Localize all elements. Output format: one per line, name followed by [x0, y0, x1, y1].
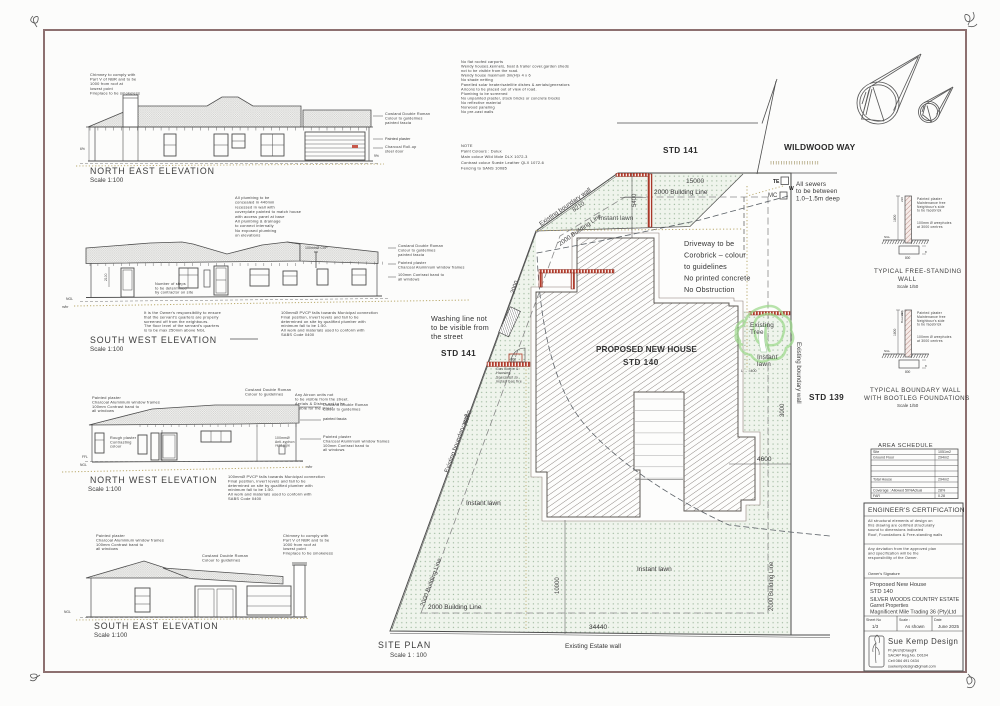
svg-text:1800: 1800 — [893, 214, 897, 222]
svg-text:294m2: 294m2 — [938, 478, 949, 482]
svg-text:Boundary: Boundary — [900, 310, 904, 323]
svg-text:Painted plaster: Painted plaster — [398, 261, 427, 265]
svg-text:SOUTH EAST ELEVATION: SOUTH EAST ELEVATION — [94, 621, 219, 631]
svg-text:Scale 1:100: Scale 1:100 — [90, 177, 124, 184]
svg-text:34440: 34440 — [589, 624, 607, 631]
svg-text:Tree: Tree — [750, 329, 764, 336]
svg-text:to be visible from: to be visible from — [431, 323, 489, 332]
svg-text:is to be max 250mm above NGL: is to be max 250mm above NGL — [144, 328, 206, 333]
svg-text:800: 800 — [905, 370, 911, 374]
svg-text:Fireplace to be smokeless: Fireplace to be smokeless — [283, 551, 333, 556]
svg-text:No pre-cast walls: No pre-cast walls — [461, 110, 494, 114]
svg-text:not to be visible from the roa: not to be visible from the road. — [461, 69, 518, 73]
svg-text:STD 140: STD 140 — [623, 358, 659, 367]
svg-text:on elevations: on elevations — [235, 233, 261, 238]
svg-text:4600: 4600 — [757, 456, 772, 463]
svg-text:Colour to guidelines: Colour to guidelines — [202, 557, 240, 562]
svg-text:by contractor on site: by contractor on site — [155, 291, 193, 295]
svg-text:NGL: NGL — [884, 235, 891, 239]
svg-text:800: 800 — [905, 256, 911, 260]
svg-text:MC: MC — [768, 193, 778, 199]
svg-text:June 2025: June 2025 — [938, 624, 960, 629]
svg-text:Scale 1:100: Scale 1:100 — [94, 632, 128, 639]
svg-text:NGL: NGL — [64, 610, 71, 614]
svg-text:painted fascia: painted fascia — [323, 417, 347, 421]
svg-text:Aircons to be placed out of vi: Aircons to be placed out of view of road… — [461, 87, 537, 91]
svg-text:As shown: As shown — [905, 624, 925, 629]
svg-text:1/3: 1/3 — [872, 624, 879, 629]
svg-text:sound to dimensions indicated: sound to dimensions indicated — [868, 528, 923, 532]
svg-text:1051m2: 1051m2 — [938, 450, 951, 454]
svg-text:Colour to guidelines: Colour to guidelines — [323, 407, 361, 411]
svg-text:this drawing are certified str: this drawing are certified structurally — [868, 524, 935, 528]
svg-text:STD 141: STD 141 — [441, 349, 476, 358]
svg-text:Scale 1:100: Scale 1:100 — [88, 486, 122, 493]
svg-text:Instant: Instant — [757, 354, 778, 361]
svg-text:responsibility of the Owner.: responsibility of the Owner. — [868, 556, 918, 560]
svg-text:Site: Site — [873, 450, 879, 454]
svg-text:to be facebrick: to be facebrick — [917, 323, 942, 327]
svg-text:Colour to guidelines: Colour to guidelines — [398, 248, 436, 252]
svg-text:NOTE: NOTE — [461, 143, 473, 148]
svg-text:Cowland Double Roman: Cowland Double Roman — [385, 112, 430, 116]
svg-text:100mm Contrast band to: 100mm Contrast band to — [323, 444, 369, 448]
svg-text:Main colour Wild Mole DLX 1: Main colour Wild Mole DLX 1072-3 — [461, 154, 528, 159]
svg-text:TE: TE — [773, 179, 780, 185]
svg-text:Scale 1/50: Scale 1/50 — [897, 403, 919, 408]
svg-text:FAR: FAR — [873, 494, 880, 498]
svg-text:Owner's Signature: Owner's Signature — [868, 571, 900, 576]
svg-text:Wendy house maximum 3m(H)x 4 x: Wendy house maximum 3m(H)x 4 x 6 — [461, 74, 531, 78]
svg-text:Instant lawn: Instant lawn — [637, 566, 672, 573]
svg-text:WALL: WALL — [898, 276, 917, 283]
svg-text:Pr.(Arch)Draught: Pr.(Arch)Draught — [888, 649, 917, 653]
svg-text:Proposed New House: Proposed New House — [870, 582, 926, 588]
svg-text:Garret Properties: Garret Properties — [870, 603, 909, 609]
svg-text:Paint Colours : Dulux: Paint Colours : Dulux — [461, 149, 502, 154]
svg-text:No shade netting: No shade netting — [461, 78, 493, 82]
svg-text:Existing boundary wall: Existing boundary wall — [795, 342, 802, 404]
svg-text:Cowland Double Roman: Cowland Double Roman — [398, 244, 443, 248]
svg-text:all windows: all windows — [92, 408, 114, 413]
svg-text:instant lawn: instant lawn — [599, 215, 634, 222]
svg-text:to be between: to be between — [796, 188, 838, 195]
svg-text:100mm Contrast band to: 100mm Contrast band to — [398, 273, 444, 277]
svg-text:Existing: Existing — [750, 322, 774, 329]
svg-text:3000: 3000 — [780, 403, 786, 417]
svg-text:Norwood paneling: Norwood paneling — [461, 106, 495, 110]
svg-text:Scale 1/50: Scale 1/50 — [897, 284, 919, 289]
svg-text:NORTH EAST ELEVATION: NORTH EAST ELEVATION — [90, 166, 215, 176]
svg-text:NGL: NGL — [80, 463, 87, 467]
svg-text:1800: 1800 — [893, 328, 897, 336]
svg-text:STD 139: STD 139 — [809, 393, 844, 402]
svg-text:9%: 9% — [374, 154, 379, 158]
svg-text:Washing line not: Washing line not — [431, 314, 487, 323]
svg-text:at 3000 centres: at 3000 centres — [917, 339, 943, 343]
svg-text:100mmØ CVP: 100mmØ CVP — [305, 246, 328, 250]
svg-text:SITE PLAN: SITE PLAN — [378, 640, 431, 650]
svg-text:NGL: NGL — [66, 297, 73, 301]
svg-text:install Gas fire: install Gas fire — [496, 380, 522, 384]
svg-text:at 3000 centres: at 3000 centres — [917, 225, 943, 229]
svg-text:painted fascia: painted fascia — [398, 253, 425, 257]
svg-text:Roof, Foundations & Free-stand: Roof, Foundations & Free-standing walls — [868, 533, 942, 537]
svg-text:Charcoal Roll-up: Charcoal Roll-up — [385, 145, 416, 149]
svg-text:28%: 28% — [938, 489, 946, 493]
svg-text:and specification will be t: and specification will be the — [868, 552, 919, 556]
svg-text:294m2: 294m2 — [938, 456, 949, 460]
svg-text:Painted plaster: Painted plaster — [385, 137, 411, 141]
svg-text:Magnificent Mile Trading 36 (P: Magnificent Mile Trading 36 (Pty)Ltd — [870, 610, 956, 616]
svg-text:Plumbing to be screened: Plumbing to be screened — [461, 92, 508, 96]
svg-text:all windows: all windows — [96, 546, 118, 551]
svg-text:All structural elements of des: All structural elements of design on — [868, 519, 933, 523]
svg-text:TYPICAL FREE-STANDING: TYPICAL FREE-STANDING — [874, 268, 962, 275]
svg-text:WILDWOOD WAY: WILDWOOD WAY — [784, 142, 856, 152]
svg-text:Painted plaster: Painted plaster — [323, 435, 352, 439]
svg-text:1.0–1.5m deep: 1.0–1.5m deep — [796, 195, 840, 202]
svg-text:WITH BOOTLEG FOUNDATIONS: WITH BOOTLEG FOUNDATIONS — [864, 395, 970, 402]
svg-text:SABS Code 0400: SABS Code 0400 — [228, 496, 262, 501]
svg-text:colour: colour — [110, 445, 122, 449]
svg-text:Charcoal Aluminium window fram: Charcoal Aluminium window frames — [323, 439, 390, 443]
svg-text:painted fascia: painted fascia — [385, 121, 412, 125]
svg-text:ENGINEER'S CERTIFICATION: ENGINEER'S CERTIFICATION — [868, 507, 965, 514]
svg-text:No flat roofed carports: No flat roofed carports — [461, 60, 503, 64]
svg-text:Scale :: Scale : — [899, 618, 910, 622]
svg-text:No printed concrete: No printed concrete — [684, 274, 751, 283]
svg-text:lawn: lawn — [757, 361, 771, 368]
svg-text:all windows: all windows — [323, 448, 345, 452]
svg-text:AREA SCHEDULE: AREA SCHEDULE — [878, 443, 933, 449]
svg-text:to guidelines: to guidelines — [684, 262, 727, 271]
svg-text:No Obstruction: No Obstruction — [684, 285, 735, 294]
svg-text:vent pipe: vent pipe — [275, 444, 290, 448]
svg-text:Colour to guidelines: Colour to guidelines — [245, 391, 283, 396]
svg-text:2000 Building Line: 2000 Building Line — [769, 561, 775, 611]
svg-text:Date: Date — [934, 618, 942, 622]
svg-text:all windows: all windows — [398, 277, 420, 281]
svg-text:Driveway to be: Driveway to be — [684, 239, 734, 248]
svg-text:m/br: m/br — [62, 305, 69, 309]
svg-text:Scale 1 : 100: Scale 1 : 100 — [390, 652, 427, 659]
svg-text:15000: 15000 — [686, 178, 704, 185]
svg-text:steel door: steel door — [385, 149, 404, 153]
svg-text:No unpainted plaster, stock br: No unpainted plaster, stock bricks or co… — [461, 96, 560, 100]
svg-text:STD 140: STD 140 — [870, 589, 893, 595]
svg-text:Colour to guidelines: Colour to guidelines — [385, 116, 423, 120]
svg-text:NORTH WEST ELEVATION: NORTH WEST ELEVATION — [90, 475, 217, 485]
svg-text:Contrast colour Suede Leathe: Contrast colour Suede Leather QLX 1072-6 — [461, 160, 544, 165]
svg-text:Panelled solar heater/satellit: Panelled solar heater/satellite dishes &… — [461, 83, 570, 87]
svg-text:Cell 084 491 0434: Cell 084 491 0434 — [888, 659, 919, 663]
svg-text:10000: 10000 — [555, 577, 561, 594]
svg-text:2000 Building Line: 2000 Building Line — [428, 604, 482, 611]
svg-text:No reflective material: No reflective material — [461, 101, 501, 105]
svg-text:Any deviation from the approve: Any deviation from the approved plan — [868, 547, 936, 551]
svg-text:All sewers: All sewers — [796, 181, 826, 188]
svg-text:2100: 2100 — [104, 273, 108, 281]
svg-text:Sue Kemp Design: Sue Kemp Design — [888, 637, 958, 646]
svg-text:TYPICAL BOUNDARY WALL: TYPICAL BOUNDARY WALL — [870, 387, 961, 394]
svg-text:5400: 5400 — [632, 193, 638, 207]
svg-text:0.28: 0.28 — [938, 494, 945, 498]
svg-text:m/br: m/br — [306, 465, 313, 469]
svg-text:FFL: FFL — [82, 455, 88, 459]
svg-text:to be facebrick: to be facebrick — [917, 209, 942, 213]
svg-text:NGL: NGL — [884, 349, 891, 353]
svg-text:Scale 1:100: Scale 1:100 — [90, 346, 124, 353]
svg-text:Instant lawn: Instant lawn — [466, 500, 501, 507]
svg-text:Fencing to SANS 10085: Fencing to SANS 10085 — [461, 165, 507, 170]
svg-text:Sheet No: Sheet No — [866, 618, 881, 622]
svg-text:Wendy houses,kennels, boat & t: Wendy houses,kennels, boat & trailer cov… — [461, 65, 569, 69]
svg-text:Corobrick – colour: Corobrick – colour — [684, 251, 746, 260]
svg-text:PROPOSED NEW HOUSE: PROPOSED NEW HOUSE — [596, 345, 697, 354]
svg-text:Coverage : Allowed 50%Actual: Coverage : Allowed 50%Actual — [873, 489, 922, 493]
svg-text:2000 Building Line: 2000 Building Line — [654, 189, 708, 196]
svg-text:STD 141: STD 141 — [663, 146, 698, 155]
svg-text:SOUTH WEST ELEVATION: SOUTH WEST ELEVATION — [90, 335, 217, 345]
svg-text:the street: the street — [431, 332, 463, 341]
svg-text:Ground Floor: Ground Floor — [873, 456, 895, 460]
svg-text:L → =400: L → =400 — [741, 369, 757, 373]
svg-text:SABS Code 0400: SABS Code 0400 — [281, 332, 315, 337]
svg-text:Charcoal Aluminium window fram: Charcoal Aluminium window frames — [398, 265, 465, 269]
svg-text:W: W — [789, 186, 794, 192]
svg-text:Total House: Total House — [873, 478, 892, 482]
svg-text:Existing Estate wall: Existing Estate wall — [565, 643, 622, 650]
svg-text:suekempdesign@gmail.com: suekempdesign@gmail.com — [888, 665, 936, 669]
svg-text:SACAP Reg.No. D0104: SACAP Reg.No. D0104 — [888, 654, 928, 658]
svg-text:6%: 6% — [80, 147, 85, 151]
svg-text:220: 220 — [900, 197, 904, 202]
svg-text:Cowland Double Roman: Cowland Double Roman — [323, 403, 368, 407]
